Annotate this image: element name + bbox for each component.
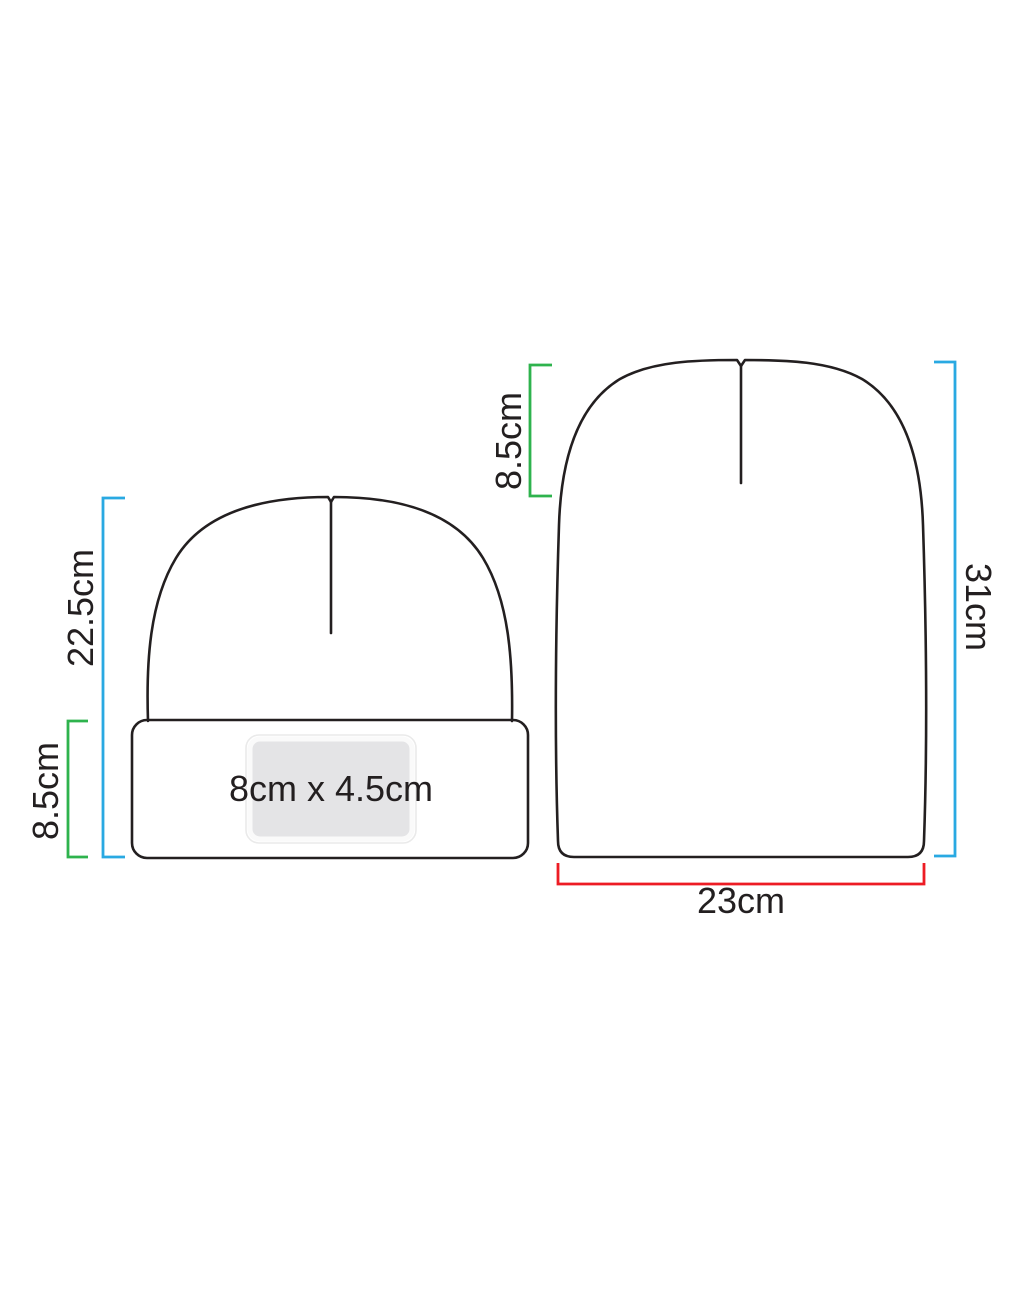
diagram-canvas: 8cm x 4.5cm 22.5cm 8.5cm 8.5cm 31cm 23cm: [0, 0, 1024, 1304]
uncuffed-height-bracket: [934, 362, 955, 856]
width-label: 23cm: [697, 880, 785, 921]
cuff-height-bracket: [68, 721, 88, 857]
cuffed-height-bracket: [103, 498, 125, 857]
cuffed-height-label: 22.5cm: [60, 549, 101, 667]
crown-depth-bracket: [530, 365, 552, 496]
crown-depth-label: 8.5cm: [488, 392, 529, 490]
cuffed-beanie-figure: 8cm x 4.5cm 22.5cm 8.5cm: [25, 497, 528, 858]
cuff-height-label: 8.5cm: [25, 742, 66, 840]
uncuffed-beanie-figure: 8.5cm 31cm 23cm: [488, 360, 999, 921]
beanie-size-diagram: 8cm x 4.5cm 22.5cm 8.5cm 8.5cm 31cm 23cm: [0, 0, 1024, 1304]
print-area-label: 8cm x 4.5cm: [229, 768, 433, 809]
uncuffed-height-label: 31cm: [958, 563, 999, 651]
